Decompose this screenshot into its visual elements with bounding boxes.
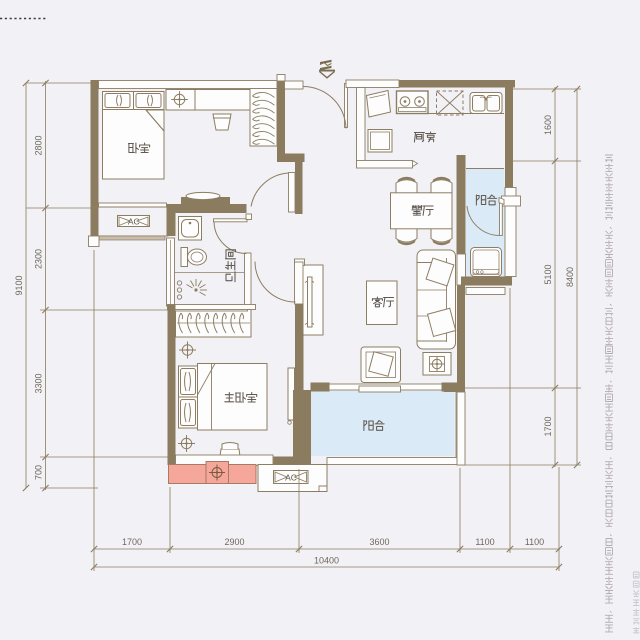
svg-text:1700: 1700 (543, 416, 553, 436)
svg-text:2900: 2900 (224, 537, 244, 547)
svg-text:1700: 1700 (122, 537, 142, 547)
svg-text:1100: 1100 (525, 537, 544, 547)
svg-text:3600: 3600 (369, 537, 389, 547)
svg-text:8400: 8400 (565, 267, 575, 287)
svg-text:9100: 9100 (14, 275, 24, 295)
svg-text:700: 700 (34, 465, 44, 480)
svg-text:3300: 3300 (34, 373, 44, 393)
svg-text:2800: 2800 (34, 135, 44, 155)
svg-text:AC: AC (128, 217, 140, 227)
svg-text:2300: 2300 (34, 249, 44, 269)
svg-text:5100: 5100 (543, 264, 553, 284)
svg-text:1600: 1600 (543, 115, 553, 135)
svg-text:10400: 10400 (314, 556, 339, 566)
svg-text:1100: 1100 (475, 537, 494, 547)
svg-text:AC: AC (285, 473, 297, 483)
